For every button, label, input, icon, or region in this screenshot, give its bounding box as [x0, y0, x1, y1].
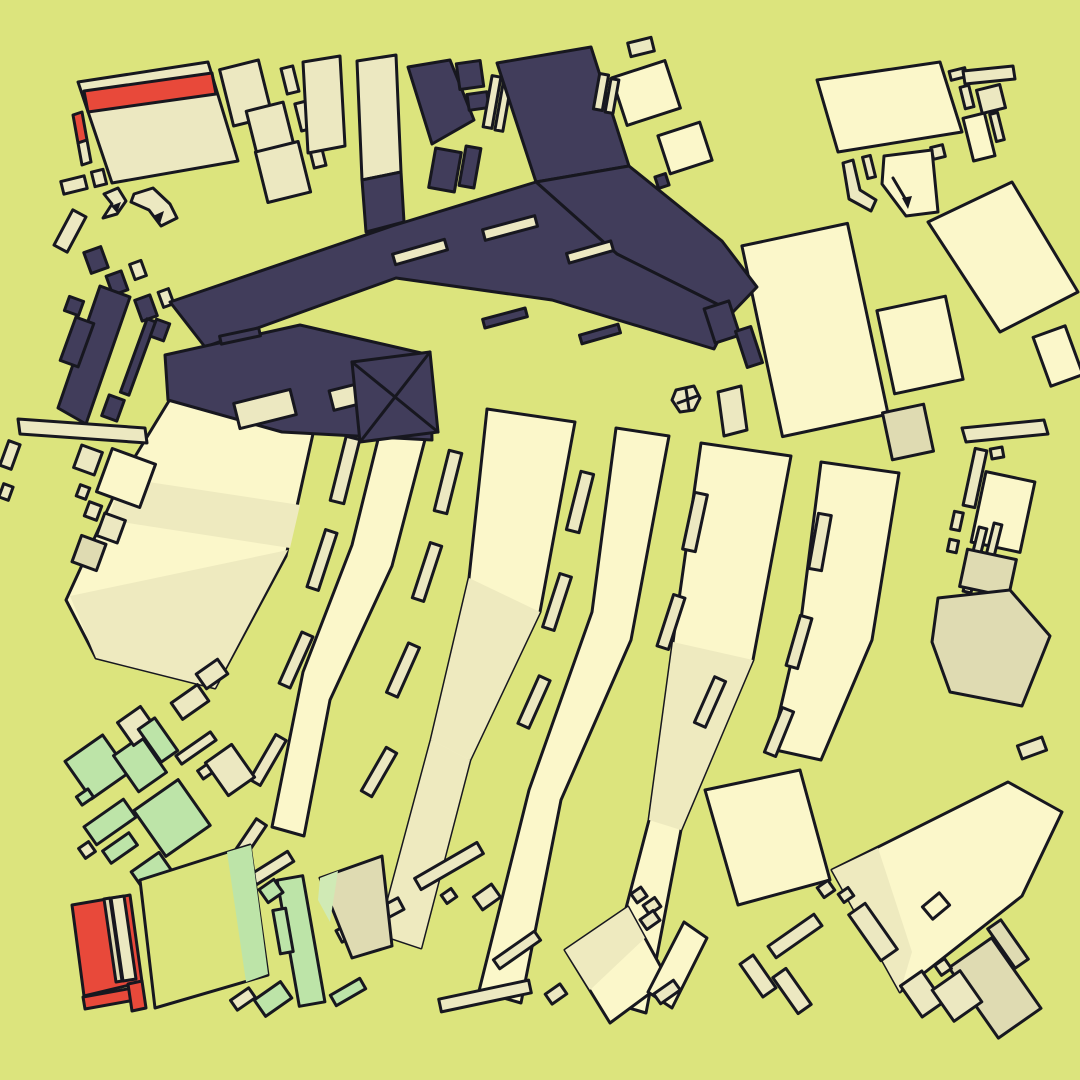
- building-footprint: [456, 61, 483, 90]
- building-footprint: [951, 511, 964, 530]
- building-footprint: [303, 56, 345, 153]
- building-footprint: [883, 404, 934, 460]
- building-footprint: [947, 539, 958, 553]
- building-footprint: [357, 55, 401, 180]
- building-footprint: [977, 85, 1006, 114]
- building-footprint: [990, 447, 1004, 459]
- building-footprint: [84, 502, 101, 521]
- building-footprint: [718, 386, 747, 436]
- building-footprint: [128, 981, 146, 1011]
- building-footprint: [64, 296, 83, 315]
- building-footprint: [76, 485, 90, 500]
- building-footprint: [91, 169, 106, 186]
- city-map-canvas: [0, 0, 1080, 1080]
- building-footprint: [429, 148, 462, 192]
- map-stage: [0, 0, 1080, 1080]
- building-footprint: [655, 174, 669, 189]
- building-footprint: [78, 140, 91, 165]
